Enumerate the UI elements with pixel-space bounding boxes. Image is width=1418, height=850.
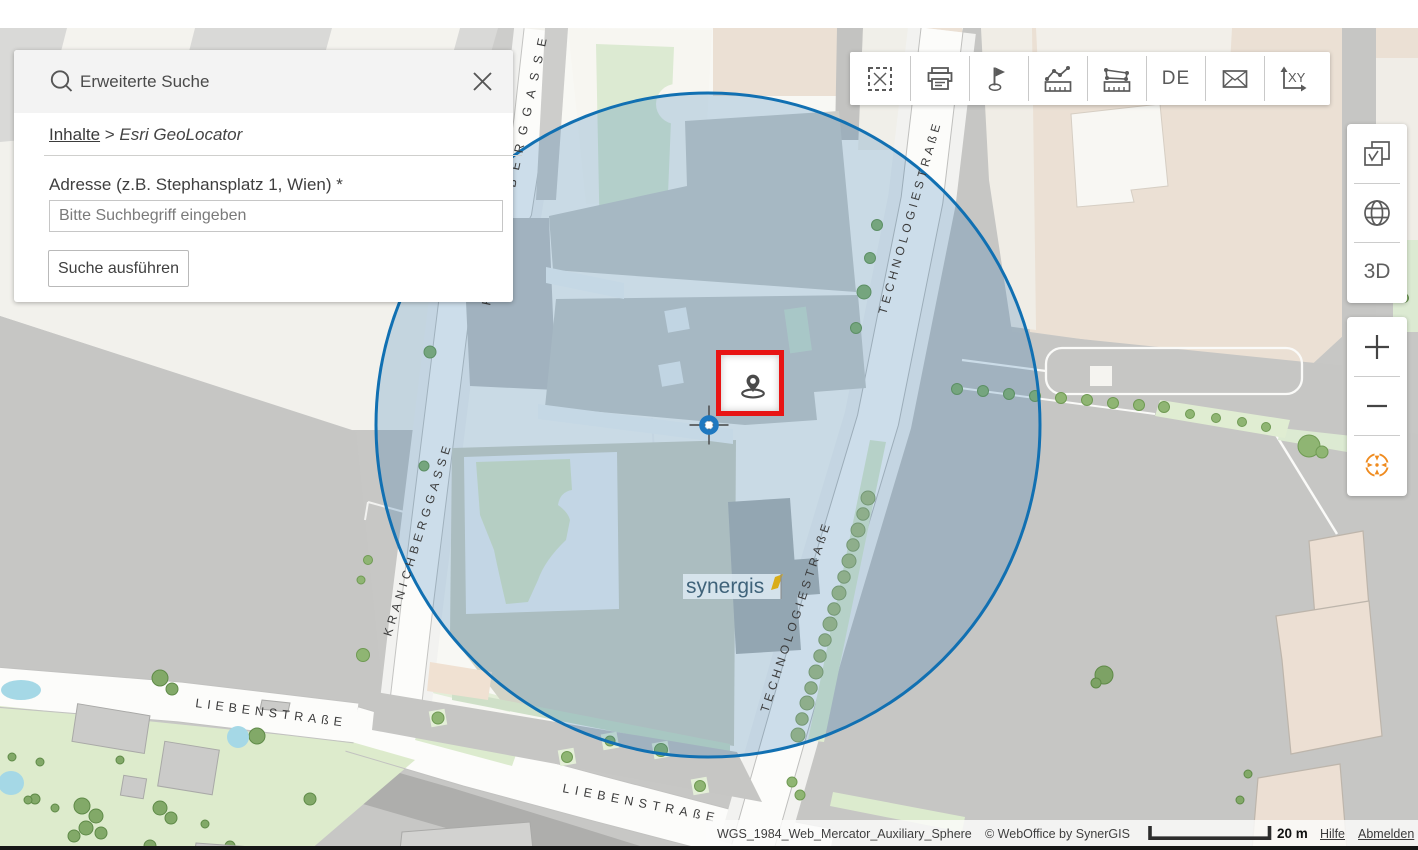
svg-text:XY: XY	[1288, 70, 1306, 85]
svg-text:synergis: synergis	[686, 575, 764, 598]
